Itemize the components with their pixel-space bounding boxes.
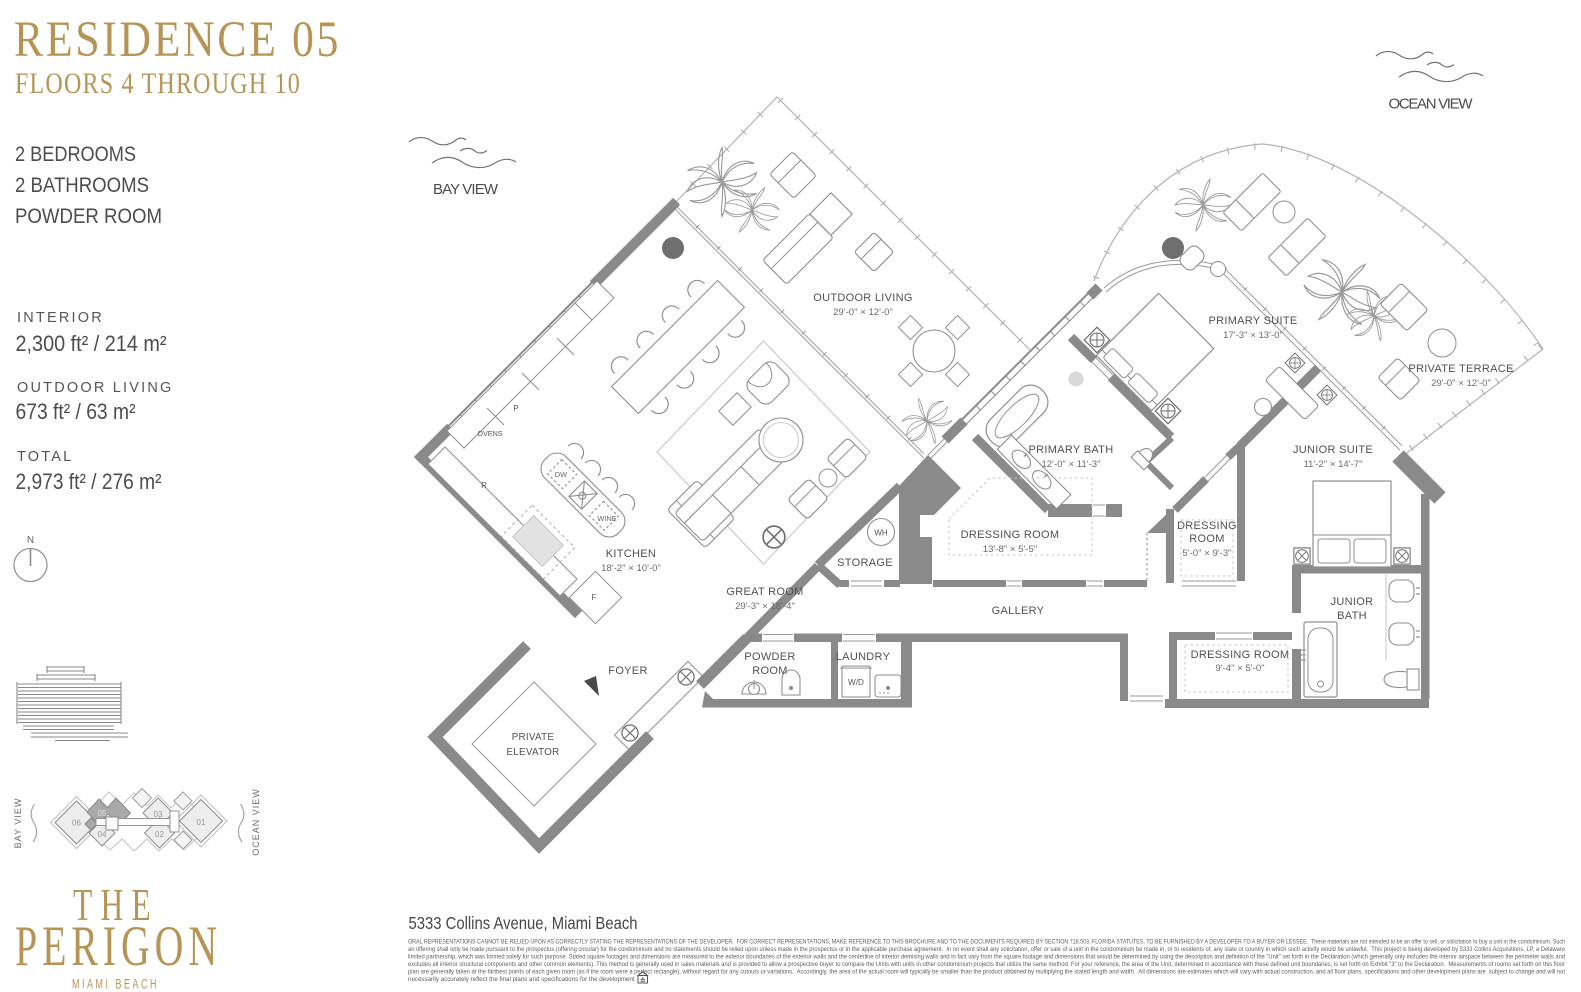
svg-text:INTERIOR: INTERIOR <box>17 310 104 326</box>
svg-text:OUTDOOR LIVING: OUTDOOR LIVING <box>17 380 173 396</box>
svg-text:11'-2" × 14'-7": 11'-2" × 14'-7" <box>1303 459 1362 470</box>
svg-text:03: 03 <box>154 810 163 819</box>
svg-text:29'-0" × 12'-0": 29'-0" × 12'-0" <box>1431 378 1491 389</box>
svg-text:GREAT ROOM: GREAT ROOM <box>726 586 803 598</box>
svg-text:PERIGON: PERIGON <box>15 915 222 978</box>
svg-text:TOTAL: TOTAL <box>17 449 73 465</box>
svg-text:BAY VIEW: BAY VIEW <box>433 181 500 198</box>
svg-text:ROOM: ROOM <box>752 665 787 677</box>
svg-text:DRESSING ROOM: DRESSING ROOM <box>1191 649 1290 661</box>
svg-text:MIAMI BEACH: MIAMI BEACH <box>72 976 159 992</box>
svg-text:18'-2" × 10'-0": 18'-2" × 10'-0" <box>601 563 661 574</box>
svg-text:02: 02 <box>155 830 164 839</box>
svg-text:limited partnership, which was: limited partnership, which was formed so… <box>408 954 1566 961</box>
svg-text:OVENS: OVENS <box>477 429 502 438</box>
svg-text:WH: WH <box>874 529 888 538</box>
svg-text:LAUNDRY: LAUNDRY <box>836 651 891 663</box>
svg-text:KITCHEN: KITCHEN <box>606 548 656 560</box>
svg-text:GALLERY: GALLERY <box>992 605 1045 617</box>
svg-text:ORAL REPRESENTATIONS CANNOT BE: ORAL REPRESENTATIONS CANNOT BE RELIED UP… <box>408 939 1565 946</box>
svg-text:necessarily accurately reflect: necessarily accurately reflect the final… <box>408 976 635 983</box>
svg-text:DRESSING: DRESSING <box>1177 520 1237 532</box>
svg-text:PRIMARY BATH: PRIMARY BATH <box>1029 444 1114 456</box>
svg-text:ELEVATOR: ELEVATOR <box>506 747 559 758</box>
svg-text:5333 Collins Avenue, Miami Bea: 5333 Collins Avenue, Miami Beach <box>409 913 638 933</box>
svg-text:2,973 ft² / 276 m²: 2,973 ft² / 276 m² <box>16 469 162 494</box>
svg-text:01: 01 <box>197 818 206 827</box>
svg-text:an offering shall only be made: an offering shall only be made pursuant … <box>408 946 1566 953</box>
svg-text:JUNIOR: JUNIOR <box>1331 596 1374 608</box>
svg-text:29'-0" × 12'-0": 29'-0" × 12'-0" <box>833 307 893 318</box>
svg-text:BATH: BATH <box>1337 610 1367 622</box>
svg-text:WINE: WINE <box>597 514 617 523</box>
svg-text:12'-0" × 11'-3": 12'-0" × 11'-3" <box>1041 459 1100 470</box>
svg-text:PRIVATE: PRIVATE <box>512 732 555 743</box>
svg-text:5'-0" × 9'-3": 5'-0" × 9'-3" <box>1182 548 1231 559</box>
svg-text:JUNIOR SUITE: JUNIOR SUITE <box>1293 444 1373 456</box>
svg-text:RESIDENCE 05: RESIDENCE 05 <box>14 12 341 68</box>
svg-text:plan are generally taken at th: plan are generally taken at the farthest… <box>408 969 1565 976</box>
svg-text:05: 05 <box>98 809 107 818</box>
svg-text:PRIVATE TERRACE: PRIVATE TERRACE <box>1408 363 1513 375</box>
svg-text:W/D: W/D <box>848 678 864 687</box>
svg-text:2,300 ft² / 214 m²: 2,300 ft² / 214 m² <box>16 331 167 356</box>
svg-text:excludes all interior structur: excludes all interior structural compone… <box>408 961 1565 968</box>
svg-text:POWDER ROOM: POWDER ROOM <box>15 204 162 228</box>
svg-text:17'-3" × 13'-0": 17'-3" × 13'-0" <box>1223 330 1283 341</box>
svg-text:DW: DW <box>555 470 568 479</box>
svg-text:673 ft² / 63 m²: 673 ft² / 63 m² <box>16 399 136 424</box>
svg-text:P: P <box>513 404 518 413</box>
svg-text:STORAGE: STORAGE <box>837 557 893 569</box>
svg-text:DRESSING ROOM: DRESSING ROOM <box>961 529 1060 541</box>
svg-text:04: 04 <box>98 830 107 839</box>
svg-text:FOYER: FOYER <box>608 665 647 677</box>
svg-text:N: N <box>27 535 34 546</box>
svg-text:R: R <box>481 481 487 490</box>
svg-text:13'-8" × 5'-5": 13'-8" × 5'-5" <box>983 544 1037 555</box>
svg-text:9'-4" × 5'-0": 9'-4" × 5'-0" <box>1215 663 1264 674</box>
svg-text:29'-3" × 18'-4": 29'-3" × 18'-4" <box>735 601 795 612</box>
svg-text:06: 06 <box>72 819 81 828</box>
svg-text:ROOM: ROOM <box>1189 533 1224 545</box>
svg-text:2 BATHROOMS: 2 BATHROOMS <box>15 173 149 197</box>
svg-text:OCEAN VIEW: OCEAN VIEW <box>1389 96 1475 113</box>
svg-text:POWDER: POWDER <box>744 651 795 663</box>
svg-text:FLOORS 4 THROUGH 10: FLOORS 4 THROUGH 10 <box>15 67 301 100</box>
svg-text:OUTDOOR LIVING: OUTDOOR LIVING <box>813 292 913 304</box>
svg-text:F: F <box>592 593 597 602</box>
svg-text:OCEAN VIEW: OCEAN VIEW <box>251 788 261 856</box>
svg-text:PRIMARY SUITE: PRIMARY SUITE <box>1208 315 1297 327</box>
svg-text:2 BEDROOMS: 2 BEDROOMS <box>15 142 136 166</box>
svg-text:BAY VIEW: BAY VIEW <box>13 798 23 849</box>
